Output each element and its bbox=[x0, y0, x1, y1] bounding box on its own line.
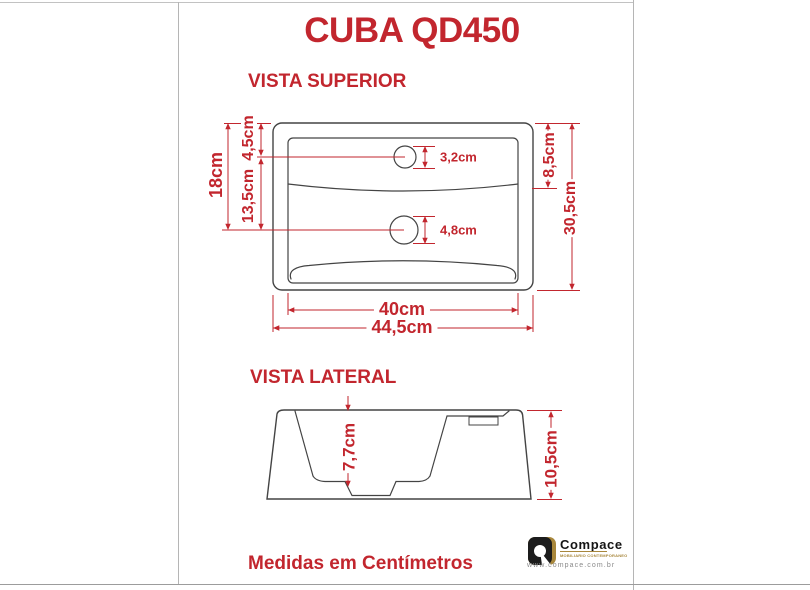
top-view-outline bbox=[273, 123, 533, 290]
page-title: CUBA QD450 bbox=[304, 13, 519, 48]
basin-left-wall bbox=[295, 411, 313, 476]
dim-drain-hole-label: 4,8cm bbox=[438, 224, 479, 237]
diagram-page: CUBA QD450 VISTA SUPERIOR VISTA LATERAL … bbox=[0, 0, 810, 590]
ledge-line bbox=[447, 411, 509, 416]
basin-right-wall bbox=[430, 416, 447, 476]
dim-total-depth-label: 30,5cm bbox=[563, 179, 579, 237]
units-note: Medidas em Centímetros bbox=[248, 554, 473, 573]
top-view-heading: VISTA SUPERIOR bbox=[248, 72, 406, 91]
logo-brand-text: Compace bbox=[560, 537, 623, 552]
drain-funnel bbox=[345, 482, 396, 496]
logo-tagline-text: MOBILIARIO CONTEMPORANEO bbox=[560, 553, 627, 558]
side-view-outline bbox=[267, 410, 531, 499]
dim-side-height-label: 10,5cm bbox=[543, 428, 560, 490]
ledge-divider-curve bbox=[288, 184, 518, 191]
dim-inner-width-label: 40cm bbox=[374, 300, 430, 318]
logo-website-text: www.compace.com.br bbox=[527, 562, 615, 569]
dim-lower-section-label: 13,5cm bbox=[241, 167, 257, 225]
basin-floor-left bbox=[313, 476, 345, 482]
overflow-slot bbox=[469, 417, 498, 425]
logo-divider bbox=[560, 551, 607, 552]
dim-ledge-depth-label: 8,5cm bbox=[542, 130, 558, 179]
dim-faucet-hole-label: 3,2cm bbox=[438, 151, 479, 164]
basin-bottom-curve bbox=[290, 261, 515, 279]
dim-outer-width-label: 44,5cm bbox=[366, 318, 437, 336]
dim-basin-depth-label: 7,7cm bbox=[341, 421, 358, 473]
side-view-heading: VISTA LATERAL bbox=[250, 368, 396, 387]
dim-upper-section-label: 4,5cm bbox=[241, 113, 257, 162]
basin-floor-right bbox=[396, 476, 430, 482]
dim-total-height-label: 18cm bbox=[207, 150, 225, 200]
